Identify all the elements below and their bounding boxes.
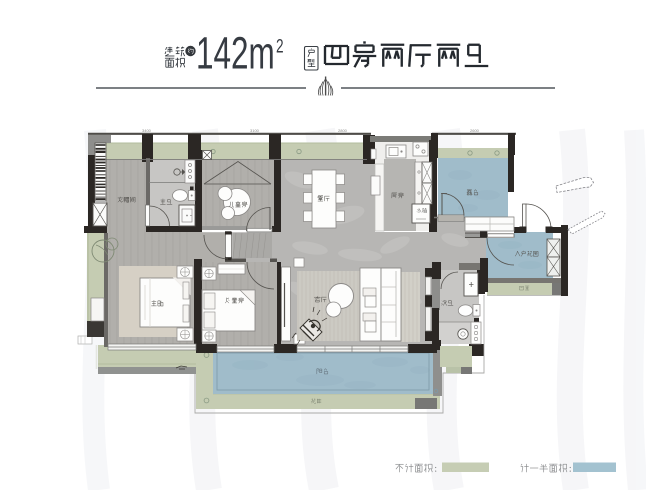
svg-text:3400: 3400 [142,128,152,133]
svg-text:2800: 2800 [338,128,348,133]
svg-text:3100: 3100 [250,128,260,133]
svg-text:142m: 142m [196,29,275,79]
svg-text:2: 2 [276,35,284,57]
svg-text:2600: 2600 [470,128,480,133]
